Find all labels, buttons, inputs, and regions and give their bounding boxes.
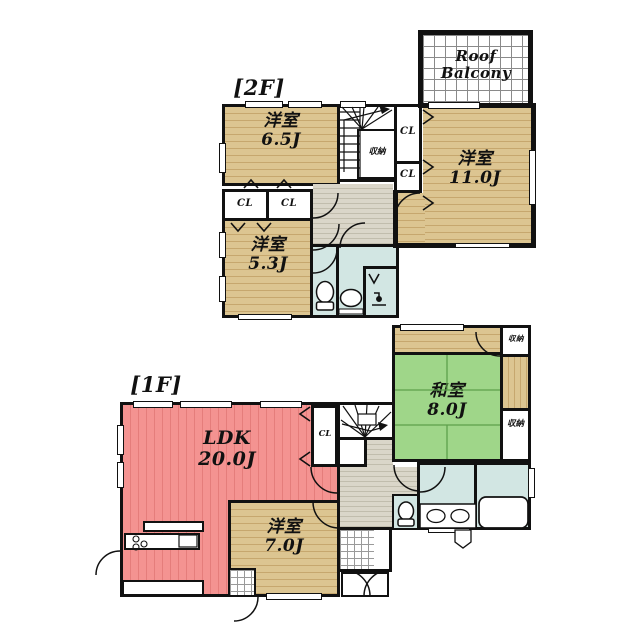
toilet-room-1f (392, 494, 420, 530)
window (219, 143, 226, 173)
porch (341, 572, 389, 597)
wall (393, 190, 398, 243)
closet-2f-d-label: CL (270, 198, 308, 209)
window (455, 243, 510, 248)
room-2f-west-11-0-label: 洋室 11.0J (420, 150, 530, 188)
storage-2f-label: 収納 (359, 148, 395, 158)
window (219, 276, 226, 302)
ldk-cabinet (122, 580, 204, 596)
kitchen-unit (124, 533, 200, 550)
window (238, 314, 292, 320)
closet-2f-a-label: CL (396, 126, 420, 137)
room-1f-west-7-0-label: 洋室 7.0J (232, 518, 336, 556)
window (117, 425, 124, 455)
genkan-floor (340, 530, 374, 569)
storage-1f-side-box (500, 408, 531, 462)
storage-1f-top-label: 収納 (501, 335, 531, 343)
wall (363, 266, 396, 269)
kitchen-counter (143, 521, 204, 532)
window (117, 462, 124, 488)
window (529, 150, 536, 205)
window (260, 401, 302, 408)
hallway-1f-upper (367, 440, 393, 467)
closet-1f-west-checker (228, 568, 256, 597)
closet-1f-label: CL (314, 430, 336, 440)
staircase-1f-box (337, 402, 396, 440)
window (428, 528, 470, 533)
closet-2f-c-label: CL (226, 198, 264, 209)
wall (336, 247, 339, 315)
closet-2f-b-label: CL (396, 169, 420, 180)
window (428, 102, 480, 109)
room-ldk-label: LDK 20.0J (172, 428, 282, 471)
hallway-2f (313, 184, 393, 247)
floor-plan: [2F] Roof Balcony 洋室 6.5J 洋室 11.0J 洋室 5.… (0, 0, 640, 640)
window (133, 401, 173, 408)
room-2f-west-5-3-label: 洋室 5.3J (222, 236, 314, 274)
floor1-label: [1F] (121, 373, 191, 397)
window (180, 401, 232, 408)
room-washitsu-label: 和室 8.0J (399, 382, 495, 420)
under-stair-box (337, 437, 367, 467)
bathroom-1f (474, 462, 531, 530)
window (528, 468, 535, 498)
oshiire-closet (500, 354, 531, 411)
wall (363, 266, 366, 315)
window (288, 101, 322, 108)
window (400, 324, 464, 331)
storage-1f-side-label: 収納 (507, 420, 524, 430)
washroom-1f (417, 462, 477, 530)
floor2-label: [2F] (224, 76, 294, 100)
window (266, 593, 322, 600)
bathroom-strip-2f (310, 244, 399, 318)
roof-balcony-label: Roof Balcony (430, 48, 522, 82)
room-2f-west-6-5-label: 洋室 6.5J (231, 112, 331, 150)
window (245, 101, 283, 108)
room-2f-west-11-0-annex (398, 193, 425, 243)
window (340, 101, 366, 108)
